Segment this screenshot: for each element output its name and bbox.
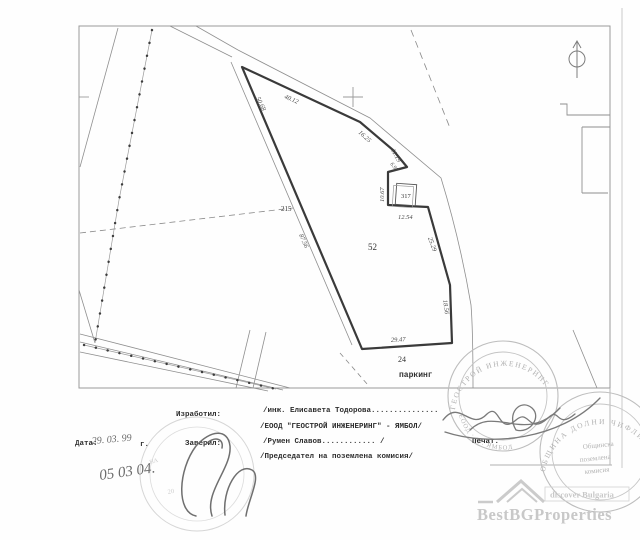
certified-label: Заверил:	[185, 440, 221, 448]
road-lines	[79, 26, 597, 391]
geostroy-stamp: ГЕОСТРОЙ ИНЖЕНЕРИНГ ЕООД · гр. ЯМБОЛ	[448, 341, 558, 452]
dim-label: 10.67	[379, 187, 386, 202]
footer-text-block: Изработил: /инж. Елисавета Тодорова.....…	[75, 407, 499, 461]
parking-number-label: 24	[398, 355, 406, 364]
dim-label: 29.47	[391, 336, 407, 344]
scanned-cadastral-document: 50.68 40.12 16.25 11.19 6.98 10.67 12.54…	[0, 0, 640, 540]
fence-dotted-lines	[84, 30, 276, 389]
dim-label: 11.19	[389, 148, 402, 164]
dashed-boundary-lines	[80, 30, 450, 385]
survey-map-canvas: 50.68 40.12 16.25 11.19 6.98 10.67 12.54…	[0, 0, 640, 540]
watermark-tagline: discover Bulgaria	[550, 490, 615, 500]
watermark-brand: BestBGProperties	[477, 505, 612, 524]
dim-label: 50.68	[254, 96, 267, 113]
made-by-value: /инж. Елисавета Тодорова...............	[263, 407, 439, 415]
edge-buildings	[560, 104, 610, 193]
map-frame	[79, 26, 610, 388]
made-by-label: Изработил:	[176, 410, 221, 419]
watermark-roof-icon	[478, 481, 544, 502]
certified-value: /Румен Славов............ /	[263, 438, 385, 446]
parcel-labels: 52 24 паркинг 317 215	[281, 193, 433, 380]
company-line: /ЕООД "ГЕОСТРОЙ ИНЖЕНЕРИНГ" - ЯМБОЛ/	[260, 422, 423, 431]
dim-label: 87.56	[297, 233, 310, 250]
survey-cross-icon	[343, 87, 363, 107]
handwritten-date-1999: 29. 03. 99	[91, 433, 132, 447]
dim-label: 40.12	[283, 93, 300, 106]
dimension-labels: 50.68 40.12 16.25 11.19 6.98 10.67 12.54…	[254, 93, 450, 344]
building-number-label: 317	[401, 193, 412, 200]
watermark: discover Bulgaria BestBGProperties	[477, 481, 629, 524]
parking-label: паркинг	[399, 371, 433, 380]
chairman-line: /Председател на поземлена комисия/	[260, 453, 414, 461]
dim-label: 18.56	[441, 299, 450, 315]
date-suffix: г.	[140, 441, 149, 449]
plot-number-label: 52	[368, 242, 377, 252]
north-arrow-icon	[569, 41, 585, 78]
svg-text:ЕООД · гр. ЯМБОЛ: ЕООД · гр. ЯМБОЛ	[457, 413, 514, 451]
handwritten-date-2004: 05 03 04.	[98, 460, 156, 484]
faint-stamp-fragment: 20	[167, 488, 175, 496]
plot-boundary	[242, 67, 452, 349]
geostroy-stamp-arc-bottom: ЕООД · гр. ЯМБОЛ	[457, 413, 514, 451]
road-number-label: 215	[281, 205, 292, 213]
municipality-stamp-line3: комисия	[584, 465, 610, 476]
dim-label: 12.54	[398, 214, 413, 221]
municipality-stamp-line2: поземлена	[579, 453, 612, 464]
